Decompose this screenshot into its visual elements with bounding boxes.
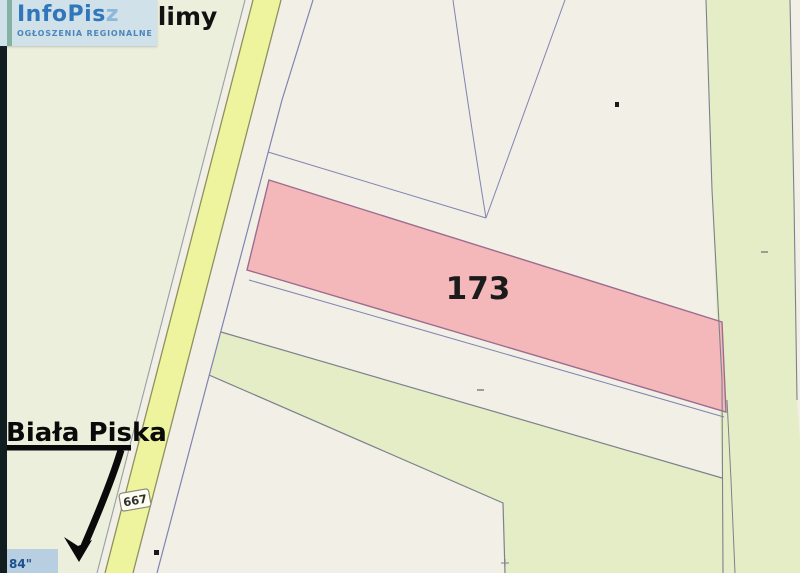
town-label: Biała Piska xyxy=(6,418,167,448)
map-dot-upper-right xyxy=(615,102,619,107)
logo: InfoPisz OGŁOSZENIA REGIONALNE xyxy=(0,0,157,46)
map-dash-middle xyxy=(477,389,484,391)
logo-accent-bar xyxy=(7,0,12,46)
town-underline xyxy=(3,445,131,451)
image-left-border xyxy=(0,0,7,573)
logo-brand: InfoPisz xyxy=(17,2,119,27)
map-screenshot: 173 667 Sulimy Biała Piska 84" InfoPisz … xyxy=(0,0,800,573)
logo-tagline: OGŁOSZENIA REGIONALNE xyxy=(17,29,153,38)
map-dash-right xyxy=(761,251,768,253)
logo-brand-suffix: z xyxy=(106,2,119,27)
cadastral-map: 173 667 Sulimy Biała Piska 84" xyxy=(0,0,800,573)
logo-brand-text: InfoPis xyxy=(17,2,106,27)
coordinate-label: 84" xyxy=(9,557,32,571)
map-dot-lower-left xyxy=(154,550,159,555)
parcel-number-label: 173 xyxy=(446,271,511,307)
